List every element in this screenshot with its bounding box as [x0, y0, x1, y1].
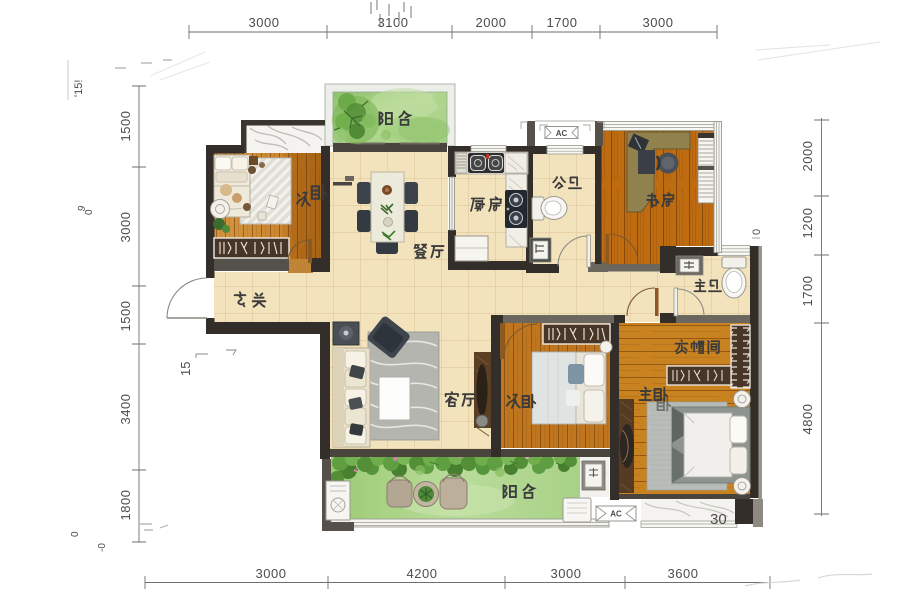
- svg-text:15: 15: [178, 362, 193, 376]
- svg-text:1700: 1700: [547, 15, 578, 30]
- svg-text:2000: 2000: [800, 141, 815, 172]
- svg-text:3000: 3000: [118, 212, 133, 243]
- svg-text:3100: 3100: [378, 15, 409, 30]
- svg-text:1200: 1200: [800, 208, 815, 239]
- svg-text:1800: 1800: [118, 490, 133, 521]
- svg-text:2000: 2000: [476, 15, 507, 30]
- svg-text:3000: 3000: [256, 566, 287, 581]
- svg-text:4800: 4800: [800, 404, 815, 435]
- svg-text:30: 30: [710, 511, 727, 528]
- svg-text:3000: 3000: [551, 566, 582, 581]
- svg-text:1700: 1700: [800, 276, 815, 307]
- svg-text:'15!: '15!: [73, 80, 85, 97]
- svg-text:AC: AC: [610, 510, 622, 519]
- svg-text:1500: 1500: [118, 301, 133, 332]
- svg-text:0: 0: [70, 531, 81, 537]
- svg-text:4200: 4200: [407, 566, 438, 581]
- svg-text:3000: 3000: [249, 15, 280, 30]
- svg-text:AC: AC: [556, 129, 568, 138]
- svg-text:3400: 3400: [118, 394, 133, 425]
- svg-text:3000: 3000: [643, 15, 674, 30]
- svg-text:-0: -0: [97, 543, 108, 552]
- svg-text:1500: 1500: [118, 111, 133, 142]
- svg-text:3600: 3600: [668, 566, 699, 581]
- svg-text:0: 0: [751, 229, 763, 235]
